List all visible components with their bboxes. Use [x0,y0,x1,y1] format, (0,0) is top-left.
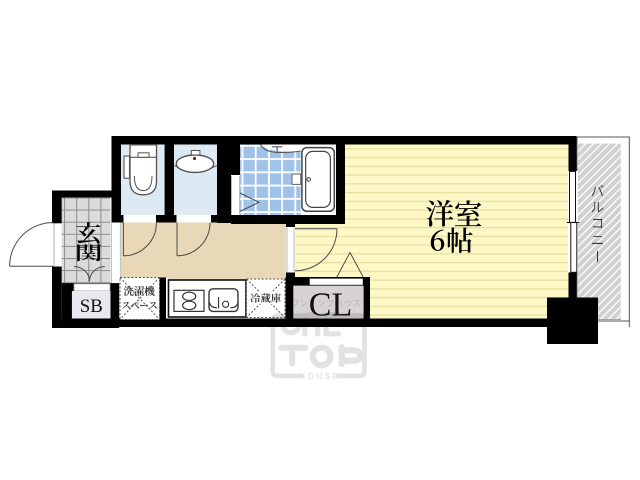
svg-text:SB: SB [80,296,103,317]
svg-text:HOUSE: HOUSE [299,372,340,381]
